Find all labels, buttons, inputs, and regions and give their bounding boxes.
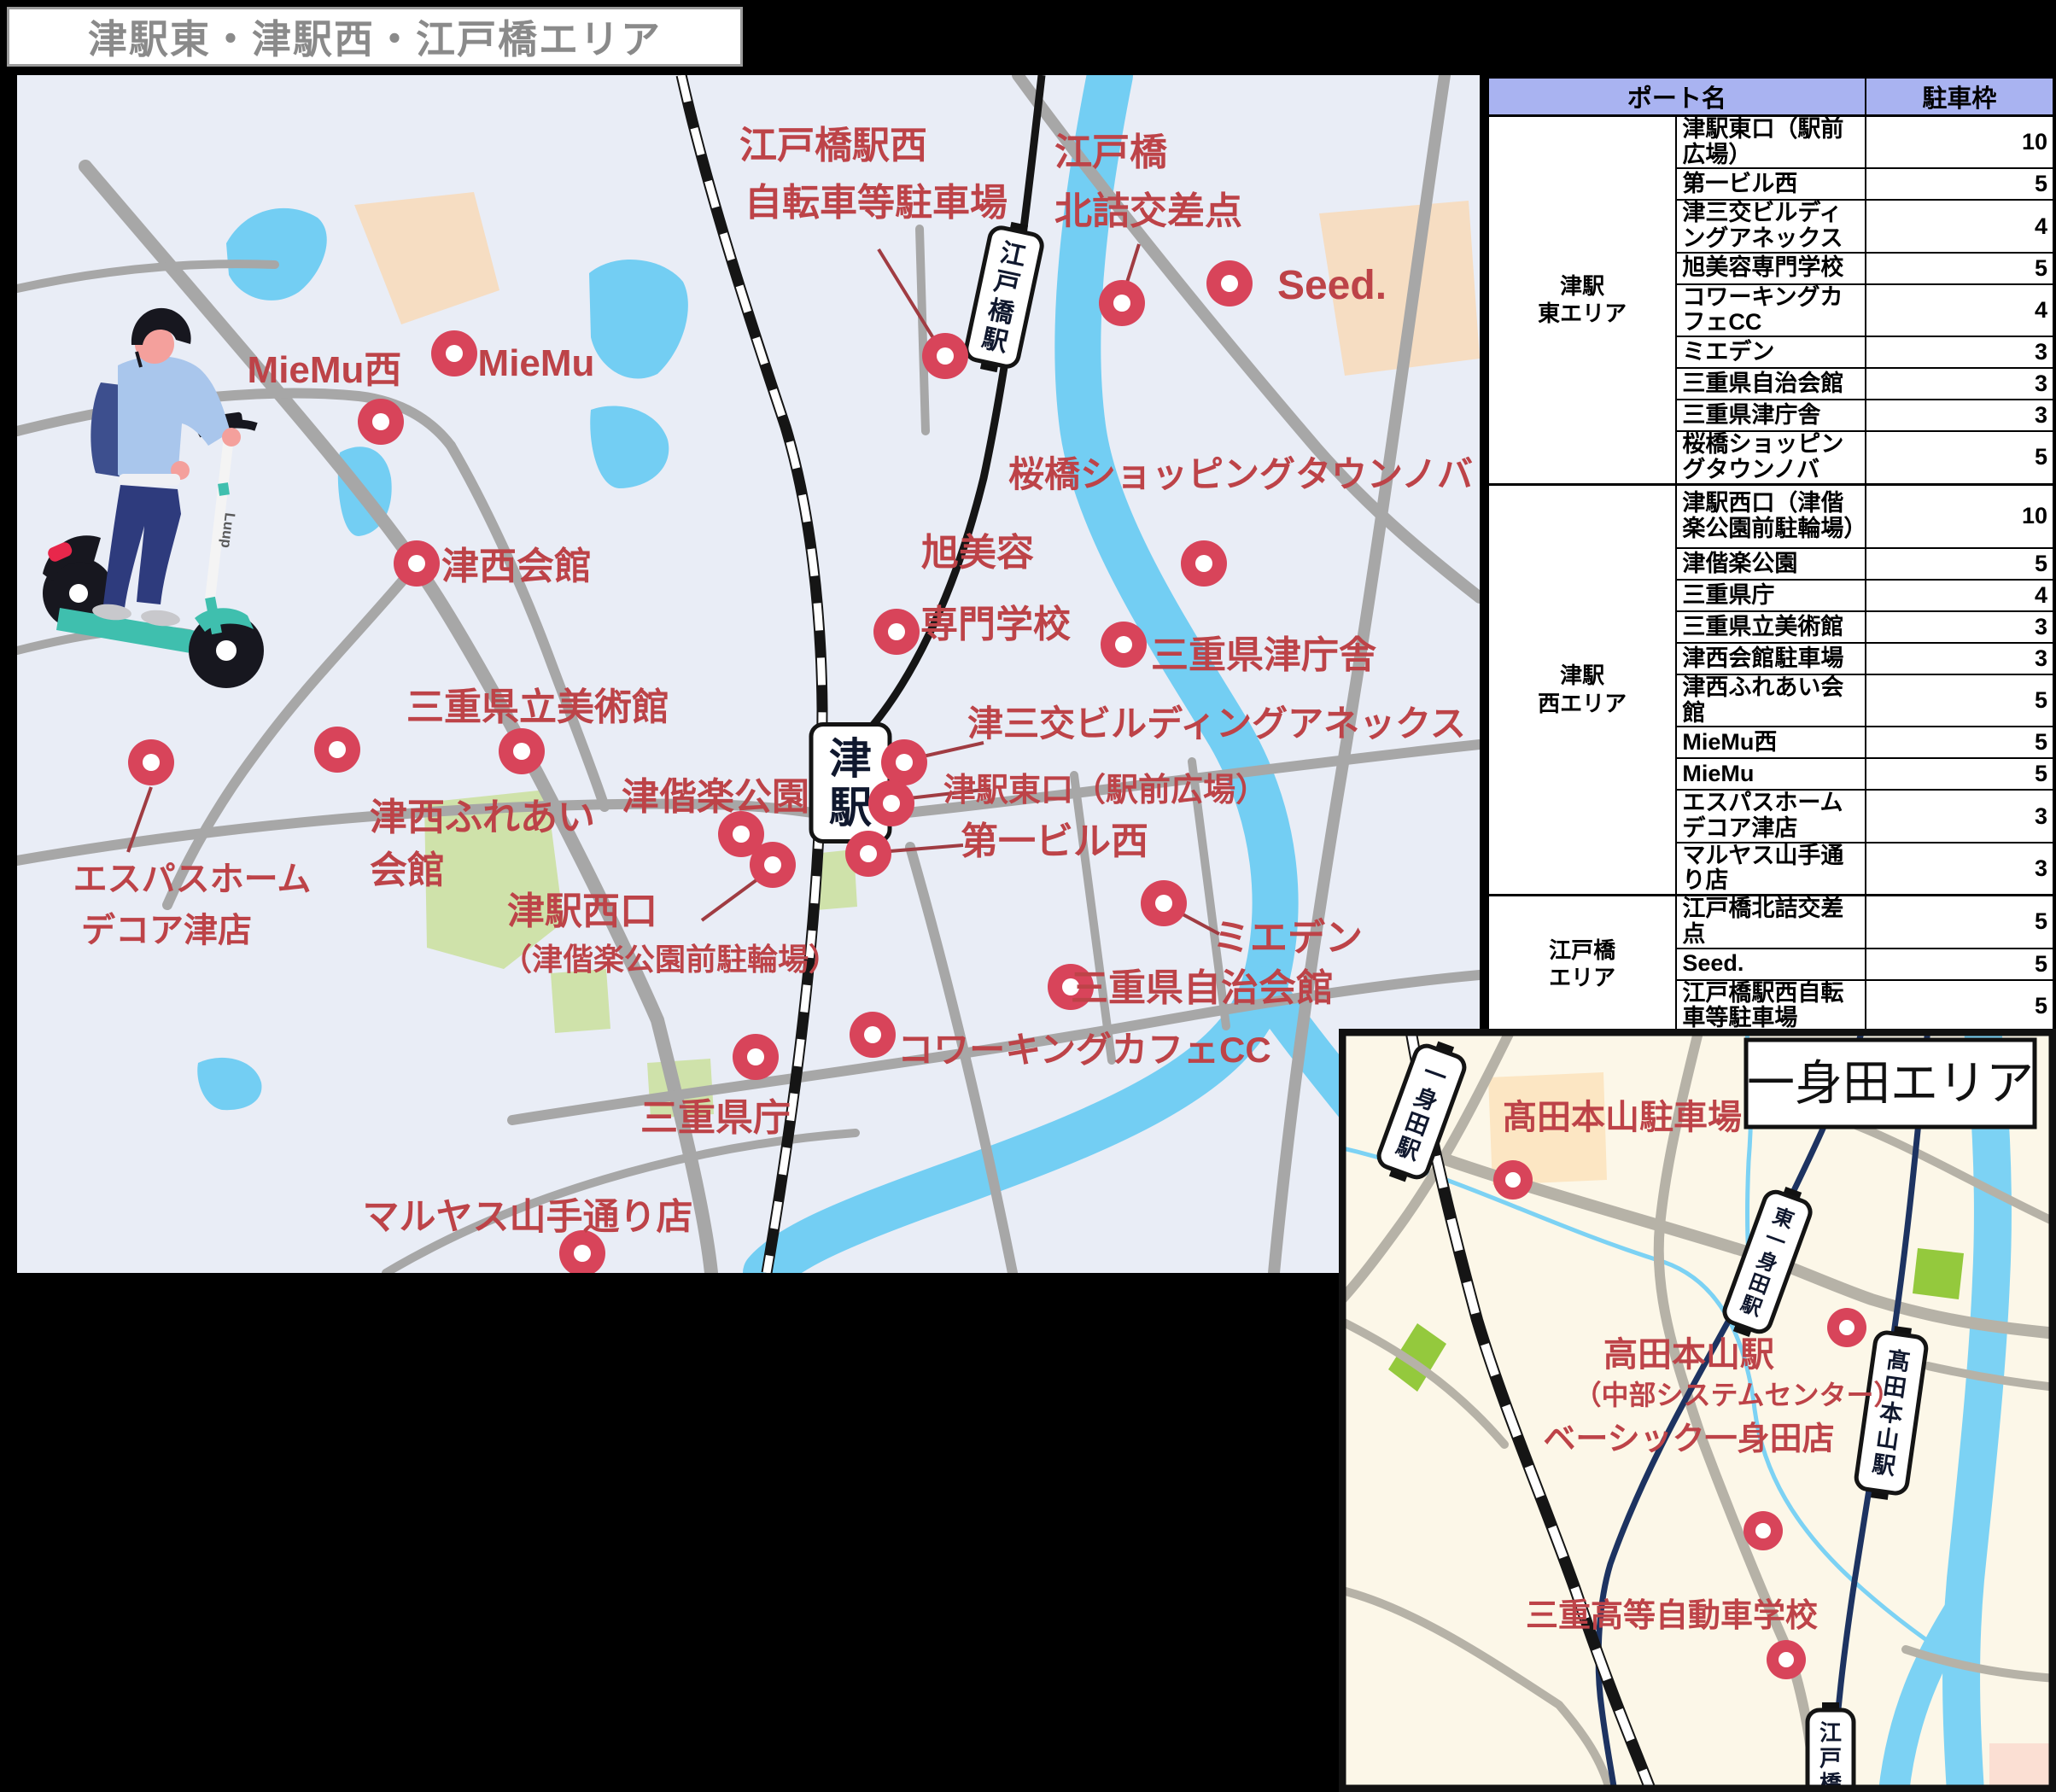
parking-slots-cell: 3 [1866,843,2054,896]
port-label: 北詰交差点 [1054,190,1242,232]
station-label: 津 [829,735,872,783]
parking-slots-cell: 5 [1866,674,2054,727]
station-label: 江 [1819,1720,1842,1746]
port-label: 津駅西口 [507,890,657,932]
port-label: 津偕楽公園 [622,776,809,818]
port-label: 三重県立美術館 [406,686,669,728]
port-label: 津西ふれあい [370,797,595,838]
area-label: 江戸橋エリア [1487,896,1676,1033]
port-marker-hole [764,856,781,873]
parking-slots-cell: 4 [1866,284,2054,336]
port-marker-hole [372,413,389,430]
port-marker-hole [513,743,530,760]
port-label: 会館 [370,849,445,891]
port-name-cell: MieMu [1676,758,1865,790]
port-label: 三重高等自動車学校 [1526,1597,1818,1634]
port-marker-hole [733,826,750,843]
main-map: Luup 津駅江戸橋駅 江戸橋駅西自転車等駐車場江戸橋北詰交差点Seed.Mie… [17,75,1480,1273]
port-name-cell: 津駅西口（津偕楽公園前駐輪場） [1676,484,1865,548]
port-label: 桜橋ショッピングタウンノバ [1008,454,1473,494]
port-label: マルヤス山手通り店 [363,1197,693,1238]
port-name-cell: MieMu西 [1676,727,1865,758]
port-label: Seed. [1277,263,1387,308]
table-row: 津駅東エリア津駅東口（駅前広場）10 [1487,116,2054,169]
port-marker-hole [883,795,900,812]
station-tsu-station: 津駅 [811,725,890,842]
port-label: MieMu西 [248,349,402,391]
station-label: 髙 [1885,1346,1912,1375]
port-marker-hole [1779,1652,1794,1667]
page: 津駅東・津駅西・江戸橋エリア [0,0,2056,1792]
port-label: 江戸橋駅西 [739,125,927,166]
parking-slots-cell: 10 [1866,116,2054,169]
parking-slots-cell: 5 [1866,727,2054,758]
parking-slots-cell: 3 [1866,368,2054,400]
port-marker-hole [1755,1523,1771,1538]
port-name-cell: 津三交ビルディングアネックス [1676,200,1865,252]
port-marker-hole [1155,895,1172,912]
table-row: 江戸橋エリア江戸橋北詰交差点5 [1487,896,2054,949]
parking-slots-cell: 5 [1866,431,2054,484]
port-marker-hole [747,1048,764,1065]
port-name-cell: 第一ビル西 [1676,168,1865,200]
port-name-cell: 桜橋ショッピングタウンノバ [1676,431,1865,484]
port-marker-hole [1505,1172,1521,1188]
area-label: 津駅東エリア [1487,116,1676,485]
inset-title-box: 一身田エリア [1746,1040,2035,1127]
port-marker-hole [408,555,425,572]
port-name-cell: ミエデン [1676,336,1865,368]
port-label: 津三交ビルディングアネックス [967,703,1466,744]
parking-slots-cell: 5 [1866,548,2054,580]
inset-map: 一身田駅東一身田駅髙田本山駅江戸橋駅 髙田本山駐車場高田本山駅（中部システムセン… [1339,1029,2056,1792]
port-name-cell: 三重県自治会館 [1676,368,1865,400]
port-name-cell: マルヤス山手通り店 [1676,843,1865,896]
port-name-cell: 三重県津庁舎 [1676,400,1865,431]
parking-slots-cell: 3 [1866,643,2054,674]
parking-slots-cell: 3 [1866,400,2054,431]
parking-slots-cell: 10 [1866,484,2054,548]
port-label: 三重県津庁舎 [1151,634,1376,676]
parking-slots-cell: 5 [1866,253,2054,284]
port-marker-hole [1113,295,1130,312]
port-label: MieMu [478,342,595,384]
table-row: 津駅西エリア津駅西口（津偕楽公園前駐輪場）10 [1487,484,2054,548]
table-header-row: ポート名 駐車枠 [1487,77,2054,116]
port-label: 髙田本山駐車場 [1503,1099,1742,1136]
port-label: ベーシック一身田店 [1543,1421,1834,1457]
port-label: （中部システムセンター） [1574,1380,1901,1410]
port-label: ミエデン [1212,916,1363,959]
belt [119,474,180,486]
port-name-header: ポート名 [1487,77,1866,116]
port-marker-hole [1839,1320,1854,1335]
station-label: 戸 [1819,1745,1842,1771]
port-label: （津偕楽公園前駐輪場） [501,942,839,977]
port-marker-hole [937,347,954,365]
port-name-cell: エスパスホームデコア津店 [1676,790,1865,842]
port-name-cell: 旭美容専門学校 [1676,253,1865,284]
port-label: 自転車等駐車場 [745,182,1008,224]
port-label: コワーキングカフェCC [897,1030,1270,1070]
parking-slots-cell: 3 [1866,336,2054,368]
port-name-cell: Seed. [1676,949,1865,980]
port-label: 第一ビル西 [961,820,1148,862]
port-name-cell: 三重県立美術館 [1676,611,1865,643]
port-tsu-nishi-kaikan: 津西会館 [394,540,592,587]
station-label: 駅 [1871,1451,1897,1480]
port-mie-jichikaikan: 三重県自治会館 [1048,964,1334,1010]
port-name-cell: 津西ふれあい会館 [1676,674,1865,727]
area-label: 津駅西エリア [1487,484,1676,896]
port-label: 津西会館 [441,546,592,587]
port-name-cell: 江戸橋北詰交差点 [1676,896,1865,949]
parking-slots-header: 駐車枠 [1866,77,2054,116]
parking-slots-cell: 3 [1866,611,2054,643]
parking-slots-cell: 5 [1866,758,2054,790]
port-name-cell: 津西会館駐車場 [1676,643,1865,674]
port-label: 三重県自治会館 [1071,967,1334,1009]
port-marker-hole [329,741,346,758]
station-label: 駅 [829,784,872,832]
port-marker-hole [1195,555,1212,572]
station-edobashi-station-inset: 江戸橋駅 [1808,1702,1854,1792]
parking-slots-cell: 5 [1866,896,2054,949]
inset-title: 一身田エリア [1747,1056,2034,1110]
port-marker-hole [888,623,905,640]
parking-slots-cell: 5 [1866,980,2054,1033]
port-marker-hole [1221,275,1238,292]
port-label: 三重県庁 [640,1097,791,1139]
station-label: 山 [1874,1425,1901,1453]
port-marker-hole [143,754,160,771]
port-marker-hole [860,845,877,862]
port-label: エスパスホーム [73,861,312,898]
port-marker-hole [864,1026,881,1043]
port-label: デコア津店 [81,911,252,949]
port-name-cell: 江戸橋駅西自転車等駐車場 [1676,980,1865,1033]
port-name-cell: 三重県庁 [1676,580,1865,611]
port-marker-hole [446,345,463,362]
parking-slots-cell: 5 [1866,168,2054,200]
port-label: 高田本山駅 [1603,1336,1774,1374]
parking-slots-cell: 4 [1866,580,2054,611]
port-label: 江戸橋 [1054,131,1167,173]
parking-slots-cell: 4 [1866,200,2054,252]
parking-slots-cell: 5 [1866,949,2054,980]
port-name-cell: 津駅東口（駅前広場） [1676,116,1865,169]
port-label: 旭美容 [921,532,1034,574]
port-name-cell: 津偕楽公園 [1676,548,1865,580]
port-name-cell: コワーキングカフェCC [1676,284,1865,336]
port-label: 専門学校 [920,604,1071,645]
port-marker-hole [896,754,913,771]
port-label: 津駅東口（駅前広場） [943,773,1268,808]
parking-slots-cell: 3 [1866,790,2054,842]
port-marker-hole [574,1245,591,1262]
port-marker-hole [1115,636,1132,653]
port-seed: Seed. [1206,260,1387,308]
page-title: 津駅東・津駅西・江戸橋エリア [7,7,743,67]
